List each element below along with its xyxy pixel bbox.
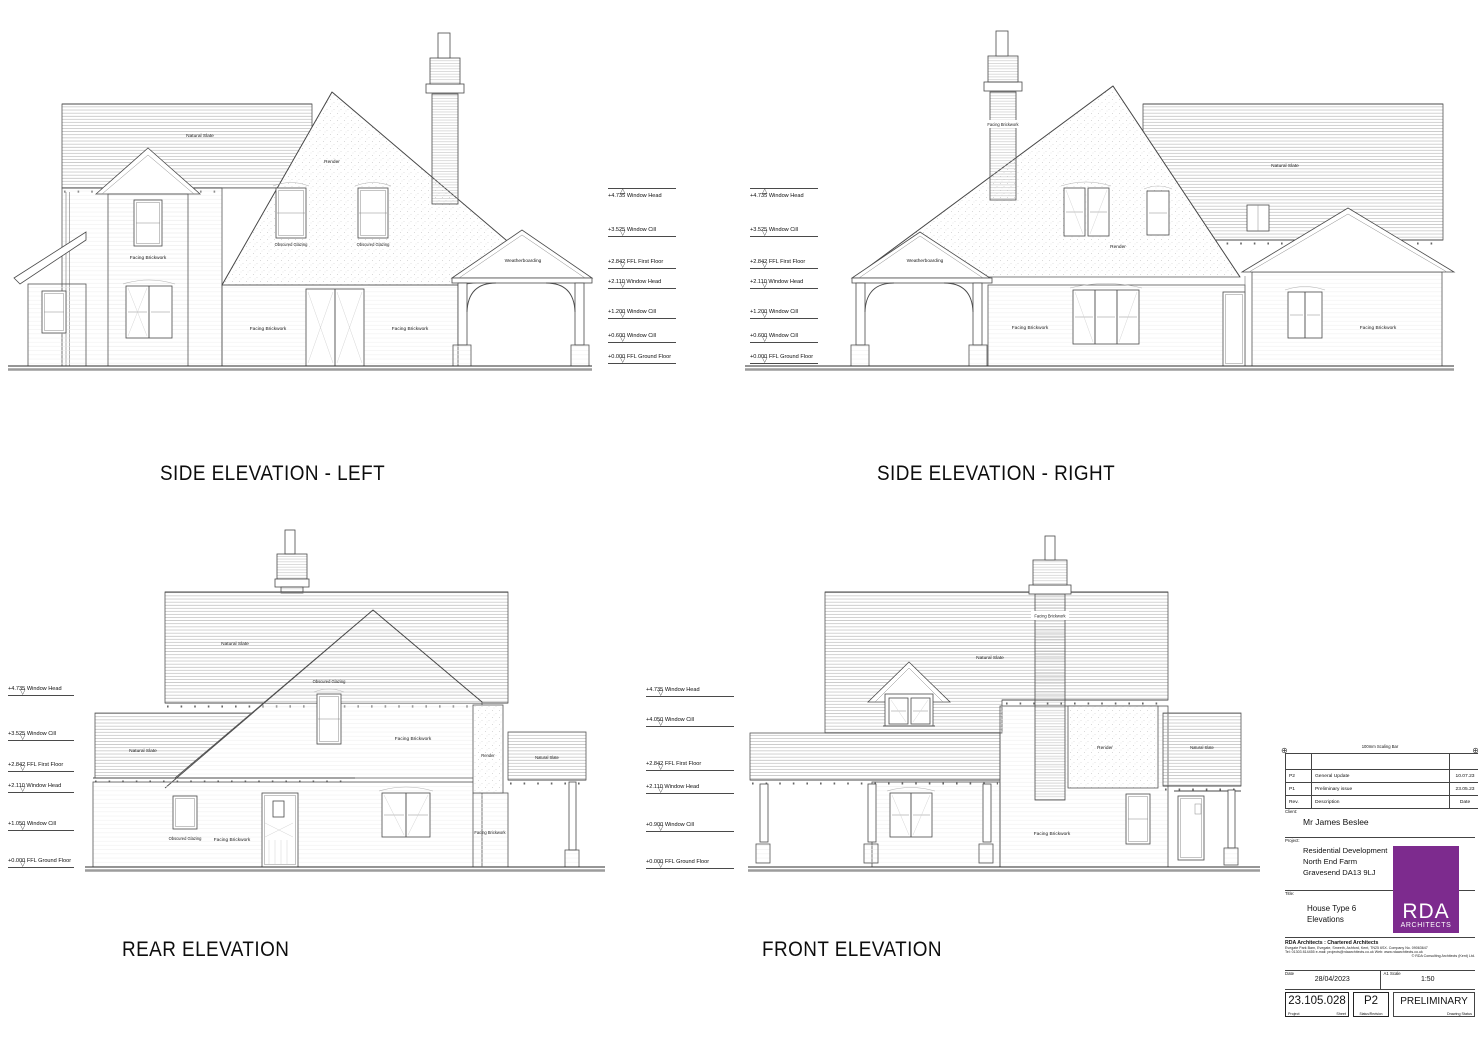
drawing-title-line: House Type 6 bbox=[1307, 903, 1391, 914]
chimney: Facing Brickwork bbox=[984, 31, 1022, 200]
status-value: PRELIMINARY bbox=[1394, 996, 1474, 1007]
material-label-natural-slate: Natural Slate bbox=[186, 133, 214, 139]
revision-header-description: Description bbox=[1312, 796, 1450, 809]
table-row: P2 General Update 10.07.23 bbox=[1286, 770, 1478, 783]
ground-floor: Obscured Glazing Facing Brickwork bbox=[93, 782, 482, 867]
revision-rev: P1 bbox=[1286, 783, 1312, 796]
revision-header-rev: Rev. bbox=[1286, 796, 1312, 809]
date-value: 28/04/2023 bbox=[1285, 976, 1380, 983]
level-marker: △+4.735 Window Head bbox=[750, 188, 818, 189]
material-label-facing-brickwork: Facing Brickwork bbox=[1034, 614, 1066, 619]
elevation-side-left-drawing: Natural Slate Facing Brickwork Render bbox=[0, 0, 600, 392]
level-marker: ▽+2.110 Window Head bbox=[646, 793, 734, 794]
drawing-number-row: 23.105.028 Project Sheet P2 Status/Revis… bbox=[1285, 992, 1475, 1017]
revision-header-date: Date bbox=[1450, 796, 1478, 809]
level-marker: ▽+1.200 Window Cill bbox=[608, 318, 676, 319]
ground-floor: Facing Brickwork bbox=[988, 284, 1245, 367]
drawing-number: 23.105.028 bbox=[1286, 995, 1348, 1007]
level-marker: ▽+3.525 Window Cill bbox=[608, 236, 676, 237]
table-row bbox=[1286, 754, 1478, 770]
level-marker: ▽+2.110 Window Head bbox=[750, 288, 818, 289]
chimney bbox=[275, 530, 309, 593]
ground-floor: Facing Brickwork Facing Brickwork bbox=[222, 285, 458, 366]
level-marker: ▽+2.110 Window Head bbox=[8, 792, 74, 793]
material-label-obscured-glazing: Obscured Glazing bbox=[313, 679, 346, 684]
door bbox=[1223, 292, 1245, 366]
material-label-facing-brickwork: Facing Brickwork bbox=[1012, 325, 1049, 331]
material-label-facing-brickwork: Facing Brickwork bbox=[1360, 325, 1397, 331]
material-label-render: Render bbox=[324, 159, 340, 165]
veranda bbox=[750, 733, 1000, 867]
material-label-obscured-glazing: Obscured Glazing bbox=[357, 242, 390, 247]
material-label-facing-brickwork: Facing Brickwork bbox=[250, 326, 287, 332]
registration-mark-icon: ⊕ bbox=[1281, 747, 1288, 755]
title-side-elevation-right: SIDE ELEVATION - RIGHT bbox=[877, 462, 1115, 486]
porch-post bbox=[1228, 790, 1235, 848]
level-marker: ▽+2.842 FFL First Floor bbox=[750, 268, 818, 269]
project-line: Residential Development bbox=[1303, 845, 1391, 856]
drawing-sheet: Natural Slate Facing Brickwork Render bbox=[0, 0, 1478, 1046]
revision-description: Preliminary issue bbox=[1312, 783, 1450, 796]
revision-table: P2 General Update 10.07.23 P1 Preliminar… bbox=[1285, 753, 1478, 809]
right-side: Render Natural Slate Facing Brickwork bbox=[473, 705, 586, 867]
level-marker: ▽+2.842 FFL First Floor bbox=[646, 770, 734, 771]
title-rear-elevation: REAR ELEVATION bbox=[122, 938, 289, 962]
level-marker: ▽+3.525 Window Cill bbox=[8, 740, 74, 741]
render-panel: Render bbox=[1068, 706, 1158, 788]
level-marker: ▽+0.900 Window Cill bbox=[646, 831, 734, 832]
chimney: Facing Brickwork bbox=[1029, 536, 1071, 800]
material-label-natural-slate: Natural Slate bbox=[221, 641, 249, 647]
material-label-facing-brickwork: Facing Brickwork bbox=[130, 255, 167, 261]
material-label-natural-slate: Natural Slate bbox=[535, 755, 559, 760]
level-marker: ▽+2.110 Window Head bbox=[608, 288, 676, 289]
title-front-elevation: FRONT ELEVATION bbox=[762, 938, 942, 962]
level-marker: ▽+0.600 Window Cill bbox=[608, 342, 676, 343]
status-caption: Drawing Status bbox=[1447, 1012, 1472, 1016]
level-marker: ▽+4.735 Window Head bbox=[646, 696, 734, 697]
scale-value: 1:50 bbox=[1381, 976, 1476, 983]
material-label-natural-slate: Natural Slate bbox=[129, 748, 157, 754]
material-label-facing-brickwork: Facing Brickwork bbox=[392, 326, 429, 332]
revision-box: P2 Status/Revision bbox=[1353, 992, 1389, 1017]
client-name: Mr James Beslee bbox=[1303, 817, 1475, 827]
chimney bbox=[426, 33, 464, 204]
registration-mark-icon: ⊕ bbox=[1472, 747, 1478, 755]
level-marker: ▽+2.842 FFL First Floor bbox=[8, 771, 74, 772]
project-line: North End Farm bbox=[1303, 856, 1391, 867]
revision-date: 10.07.23 bbox=[1450, 770, 1478, 783]
scaling-bar: ⊕ 100mm Scaling Bar ⊕ bbox=[1285, 744, 1475, 753]
gabled-projection: Facing Brickwork bbox=[96, 148, 200, 366]
logo-subtext: ARCHITECTS bbox=[1401, 922, 1452, 929]
level-marker: ▽+0.000 FFL Ground Floor bbox=[750, 363, 818, 364]
material-label-weatherboarding: Weatherboarding bbox=[907, 258, 944, 264]
level-marker: ▽+0.000 FFL Ground Floor bbox=[646, 868, 734, 869]
status-box: PRELIMINARY Drawing Status bbox=[1393, 992, 1475, 1017]
level-marker: ▽+0.000 FFL Ground Floor bbox=[8, 867, 74, 868]
porch-post bbox=[569, 782, 576, 850]
material-label-render: Render bbox=[481, 753, 495, 758]
level-marker: ▽+0.000 FFL Ground Floor bbox=[608, 363, 676, 364]
level-marker: △+4.735 Window Head bbox=[608, 188, 676, 189]
material-label-natural-slate: Natural Slate bbox=[1190, 745, 1214, 750]
material-label-natural-slate: Natural Slate bbox=[976, 655, 1004, 661]
material-label-facing-brickwork: Facing Brickwork bbox=[474, 830, 506, 835]
level-marker: ▽+4.050 Window Cill bbox=[646, 726, 734, 727]
material-label-facing-brickwork: Facing Brickwork bbox=[987, 122, 1019, 127]
drawing-number-box: 23.105.028 Project Sheet bbox=[1285, 992, 1349, 1017]
revision-value: P2 bbox=[1354, 995, 1388, 1007]
copyright: © RDA Consulting Architects (Kent) Ltd. bbox=[1285, 954, 1475, 958]
client-label: Client: bbox=[1285, 809, 1475, 814]
render-column bbox=[473, 705, 503, 793]
project-caption: Project bbox=[1288, 1012, 1299, 1016]
revision-description: General Update bbox=[1312, 770, 1450, 783]
material-label-render: Render bbox=[1110, 244, 1126, 250]
sheet-caption: Sheet bbox=[1336, 1012, 1346, 1016]
back-roof: Natural Slate bbox=[62, 104, 312, 192]
table-header-row: Rev. Description Date bbox=[1286, 796, 1478, 809]
logo-text: RDA bbox=[1402, 902, 1449, 922]
material-label-obscured-glazing: Obscured Glazing bbox=[275, 242, 308, 247]
project-label: Project: bbox=[1285, 838, 1475, 843]
material-label-render: Render bbox=[1097, 745, 1113, 751]
level-marker: ▽+2.842 FFL First Floor bbox=[608, 268, 676, 269]
table-row: P1 Preliminary issue 23.05.23 bbox=[1286, 783, 1478, 796]
date-scale-row: Date 28/04/2023 A1 Scale 1:50 bbox=[1285, 971, 1475, 990]
date-cell: Date 28/04/2023 bbox=[1285, 971, 1381, 989]
elevation-rear-drawing: Natural Slate Obscured Glazing Facing Br… bbox=[85, 520, 620, 880]
elevation-side-right-drawing: Natural Slate Render Facing Brickwork bbox=[740, 0, 1460, 392]
material-label-facing-brickwork: Facing Brickwork bbox=[214, 837, 251, 843]
revision-date: 23.05.23 bbox=[1450, 783, 1478, 796]
scale-cell: A1 Scale 1:50 bbox=[1381, 971, 1476, 989]
level-marker: ▽+4.735 Window Head bbox=[8, 695, 74, 696]
front-door bbox=[1178, 796, 1204, 860]
revision-caption: Status/Revision bbox=[1354, 1012, 1388, 1016]
small-window bbox=[173, 796, 197, 829]
material-label-obscured-glazing: Obscured Glazing bbox=[169, 836, 202, 841]
level-marker: ▽+1.050 Window Cill bbox=[8, 830, 74, 831]
level-marker: ▽+3.525 Window Cill bbox=[750, 236, 818, 237]
title-block: ⊕ 100mm Scaling Bar ⊕ P2 General Update … bbox=[1285, 744, 1475, 1017]
project-line: Gravesend DA13 9LJ bbox=[1303, 867, 1391, 878]
material-label-facing-brickwork: Facing Brickwork bbox=[395, 736, 432, 742]
rda-architects-logo: RDA ARCHITECTS bbox=[1393, 846, 1459, 933]
revision-rev: P2 bbox=[1286, 770, 1312, 783]
material-label-natural-slate: Natural Slate bbox=[1271, 163, 1299, 169]
elevation-front-drawing: Natural Slate Facing Brickwork bbox=[740, 520, 1270, 880]
client-section: Client: Mr James Beslee bbox=[1285, 809, 1475, 838]
level-marker: ▽+0.600 Window Cill bbox=[750, 342, 818, 343]
scaling-bar-label: 100mm Scaling Bar bbox=[1362, 744, 1399, 749]
firm-section: RDA Architects : Chartered Architects Ev… bbox=[1285, 940, 1475, 971]
material-label-facing-brickwork: Facing Brickwork bbox=[1034, 831, 1071, 837]
drawing-title-line: Elevations bbox=[1307, 914, 1391, 925]
material-label-weatherboarding: Weatherboarding bbox=[505, 258, 542, 264]
level-marker: ▽+1.200 Window Cill bbox=[750, 318, 818, 319]
title-side-elevation-left: SIDE ELEVATION - LEFT bbox=[160, 462, 385, 486]
